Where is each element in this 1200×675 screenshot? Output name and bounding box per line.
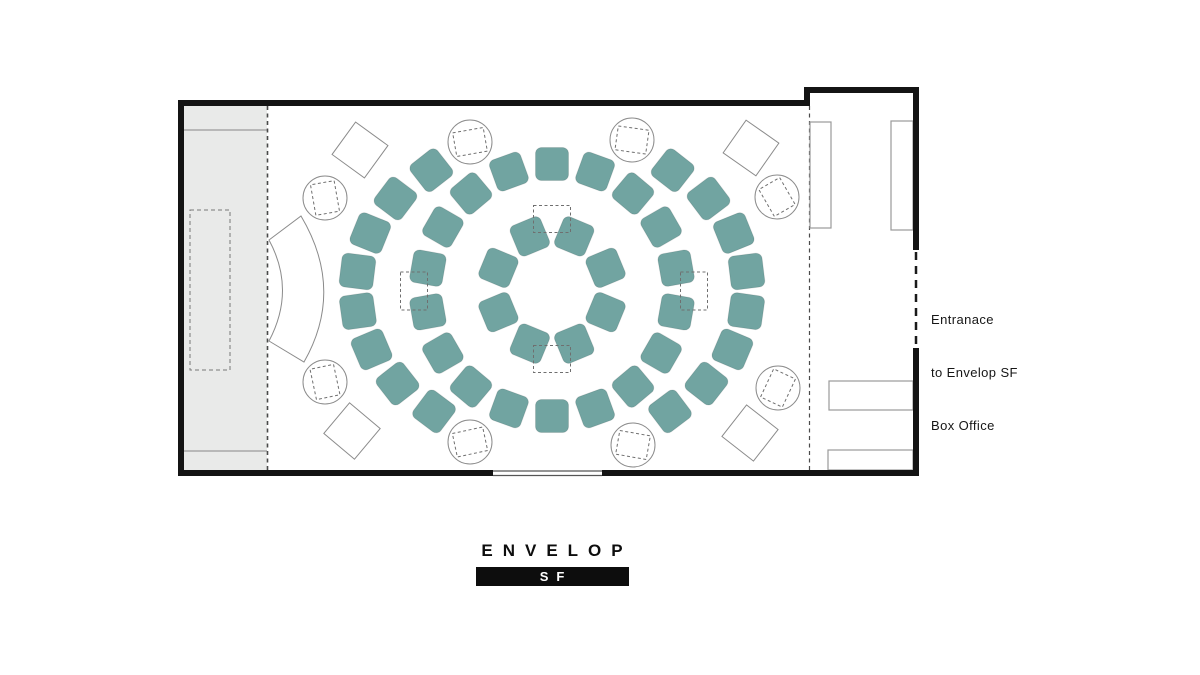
- speaker-diamond-2: [723, 120, 779, 176]
- speaker-circle-outline: [756, 366, 800, 410]
- stage-area: [184, 106, 324, 470]
- speaker-circle-1: [448, 120, 492, 164]
- speaker-circle-8: [303, 176, 347, 220]
- seat-outer-ring-10: [374, 360, 422, 408]
- seat-middle-ring-17: [448, 170, 494, 216]
- lobby-area: [810, 106, 914, 470]
- seat-middle-ring-1: [536, 148, 569, 181]
- seat-middle-ring-8: [610, 363, 656, 409]
- speaker-circle-6: [448, 420, 492, 464]
- seat-inner-ring-3: [584, 291, 627, 334]
- seat-middle-ring-11: [488, 387, 530, 429]
- floor-plan-canvas: Entranace to Envelop SF Box Office ENVEL…: [0, 0, 1200, 675]
- curved-screen-arc: [269, 216, 324, 362]
- seat-inner-ring-5: [508, 322, 551, 365]
- speaker-diamond-3: [722, 405, 778, 461]
- seat-middle-ring-16: [420, 204, 465, 249]
- box-office-counter-bottom: [828, 450, 913, 470]
- entrance-label: Entranace to Envelop SF: [931, 276, 1018, 416]
- seats-group: [339, 146, 766, 435]
- seat-outer-ring-8: [646, 388, 694, 436]
- box-office-label: Box Office: [931, 417, 995, 435]
- seat-middle-ring-10: [536, 400, 569, 433]
- seat-outer-ring-4: [728, 253, 766, 291]
- box-office-counter-top: [829, 381, 913, 410]
- seat-middle-ring-15: [409, 249, 447, 287]
- seat-outer-ring-5: [727, 292, 765, 330]
- speaker-diamond-1: [332, 122, 388, 178]
- wall-right-upper: [913, 87, 919, 250]
- seat-outer-ring-13: [339, 253, 377, 291]
- seat-inner-ring-8: [508, 215, 551, 258]
- seat-outer-ring-14: [348, 211, 392, 255]
- seat-middle-ring-3: [610, 170, 656, 216]
- speaker-circle-7: [303, 360, 347, 404]
- seat-middle-ring-14: [409, 293, 447, 331]
- seat-inner-ring-1: [553, 215, 596, 258]
- envelop-logo: ENVELOP SF: [452, 541, 652, 586]
- seat-middle-ring-6: [657, 293, 695, 331]
- speaker-circle-3: [755, 175, 799, 219]
- wall-bottom-left: [178, 470, 493, 476]
- envelop-logo-bar: SF: [476, 567, 629, 586]
- wall-top-upper: [804, 87, 919, 93]
- seat-outer-ring-11: [349, 327, 394, 372]
- seat-inner-ring-6: [477, 291, 520, 334]
- speaker-circle-outline: [755, 175, 799, 219]
- speaker-circle-5: [611, 423, 655, 467]
- seat-outer-ring-16: [407, 146, 455, 194]
- seat-outer-ring-7: [683, 360, 731, 408]
- wall-right-lower: [913, 348, 919, 476]
- speaker-circle-4: [756, 366, 800, 410]
- seat-middle-ring-5: [657, 249, 695, 287]
- envelop-logo-sf: SF: [532, 569, 573, 584]
- entrance-label-line1: Entranace: [931, 311, 1018, 329]
- speaker-diamond-4: [324, 403, 380, 459]
- seat-outer-ring-2: [685, 175, 733, 223]
- seat-middle-ring-13: [420, 330, 465, 375]
- seat-inner-ring-2: [584, 246, 627, 289]
- lobby-wall-panel-left: [810, 122, 831, 228]
- seat-middle-ring-18: [488, 150, 530, 192]
- seat-outer-ring-6: [710, 327, 755, 372]
- seat-middle-ring-4: [639, 204, 684, 249]
- speaker-circle-2: [610, 118, 654, 162]
- seat-middle-ring-7: [639, 330, 684, 375]
- seat-inner-ring-4: [553, 322, 596, 365]
- seat-inner-ring-7: [477, 246, 520, 289]
- wall-bottom-right: [602, 470, 919, 476]
- seat-outer-ring-3: [712, 211, 756, 255]
- seat-outer-ring-12: [339, 292, 377, 330]
- seat-outer-ring-9: [410, 388, 458, 436]
- envelop-logo-wordmark: ENVELOP: [452, 541, 652, 561]
- lobby-wall-panel-right: [891, 121, 913, 230]
- seat-middle-ring-9: [574, 387, 616, 429]
- stage-floor: [184, 106, 267, 470]
- wall-left: [178, 100, 184, 476]
- entrance-label-line2: to Envelop SF: [931, 364, 1018, 382]
- wall-top-main: [178, 100, 810, 106]
- seat-middle-ring-12: [448, 363, 494, 409]
- seat-outer-ring-1: [649, 146, 697, 194]
- seat-outer-ring-15: [372, 175, 420, 223]
- seat-middle-ring-2: [574, 150, 616, 192]
